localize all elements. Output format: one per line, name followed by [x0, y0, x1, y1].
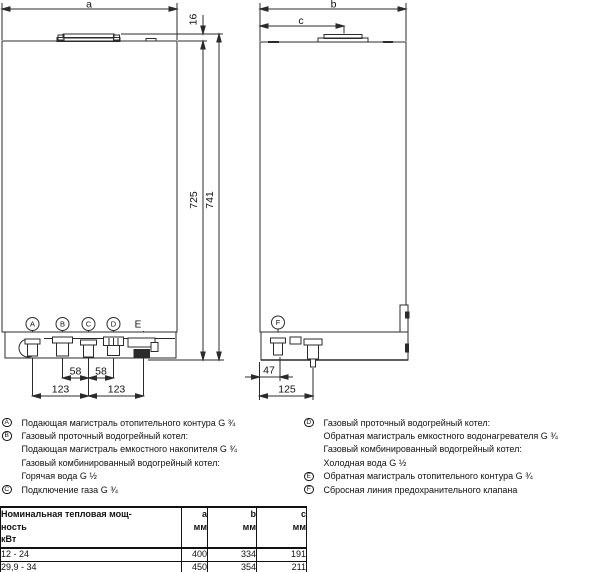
- table-header-row: Номинальная тепловая мощ- ность кВт a мм…: [1, 507, 307, 548]
- legend-item-c: C Подключение газа G ¾: [2, 483, 300, 496]
- table-header-c: c мм: [257, 507, 307, 548]
- dim-16-label: 16: [188, 14, 200, 26]
- value-c-cell: 211: [257, 562, 307, 572]
- dim-b-label: b: [331, 0, 337, 11]
- left-casing: [2, 41, 177, 332]
- legend-item-d: D Газовый проточный водогрейный котел:: [304, 416, 600, 429]
- power-range-cell: 29,9 - 34: [1, 562, 182, 572]
- legend-item-f: F Сбросная линия предохранительного клап…: [304, 483, 600, 496]
- dim-125-label: 125: [278, 384, 296, 396]
- port-a-label: A: [30, 320, 35, 329]
- legend-right-column: D Газовый проточный водогрейный котел: О…: [304, 416, 600, 496]
- legend-text: Подающая магистраль отопительного контур…: [22, 418, 236, 428]
- power-range-cell: 12 - 24: [1, 548, 182, 562]
- legend-text: Холодная вода G ½: [324, 458, 407, 468]
- table-row: 29,9 - 34 450 354 211: [1, 562, 307, 572]
- legend-item-b: B Газовый проточный водогрейный котел:: [2, 429, 300, 442]
- legend-marker-b: B: [2, 431, 12, 441]
- legend-text: Газовый проточный водогрейный котел:: [22, 431, 189, 441]
- legend-marker-e: E: [304, 472, 314, 482]
- legend-text: Сбросная линия предохранительного клапан…: [324, 485, 518, 495]
- dim-c-label: c: [298, 15, 303, 27]
- legend-text: Газовый комбинированный водогрейный коте…: [324, 444, 522, 454]
- port-f-label: F: [276, 318, 281, 327]
- legend-text: Обратная магистраль отопительного контур…: [324, 471, 533, 481]
- legend-left-column: A Подающая магистраль отопительного конт…: [2, 416, 300, 496]
- value-a-cell: 400: [182, 548, 208, 562]
- legend-item-a: A Подающая магистраль отопительного конт…: [2, 416, 300, 429]
- legend-text: Горячая вода G ½: [22, 471, 97, 481]
- table-row: 12 - 24 400 334 191: [1, 548, 307, 562]
- right-casing: [260, 42, 406, 332]
- legend-item: Холодная вода G ½: [304, 456, 600, 469]
- boiler-dimension-drawing: a b c 16 725 741 58 58 123 123 47 125 A …: [0, 0, 600, 410]
- value-b-cell: 334: [208, 548, 257, 562]
- dim-58-right-label: 58: [95, 366, 107, 378]
- page: a b c 16 725 741 58 58 123 123 47 125 A …: [0, 0, 600, 572]
- table-header-b: b мм: [208, 507, 257, 548]
- legend-marker-a: A: [2, 418, 12, 428]
- port-e-label: E: [135, 320, 142, 331]
- table-header-power: Номинальная тепловая мощ- ность кВт: [1, 507, 182, 548]
- legend-text: Подающая магистраль емкостного накопител…: [22, 444, 237, 454]
- legend-text: Газовый проточный водогрейный котел:: [324, 418, 491, 428]
- right-connection-panel: [261, 332, 408, 360]
- legend-marker-d: D: [304, 418, 314, 428]
- dim-47-label: 47: [263, 365, 275, 377]
- legend-item: Газовый комбинированный водогрейный коте…: [304, 443, 600, 456]
- table-header-a: a мм: [182, 507, 208, 548]
- dim-725-label: 725: [188, 191, 200, 209]
- legend-text: Подключение газа G ¾: [22, 485, 118, 495]
- port-b-label: B: [60, 320, 65, 329]
- dim-123-left-label: 123: [52, 384, 70, 396]
- legend-item: Обратная магистраль емкостного водонагре…: [304, 429, 600, 442]
- legend-text: Газовый комбинированный водогрейный коте…: [22, 458, 220, 468]
- legend-text: Обратная магистраль емкостного водонагре…: [324, 431, 558, 441]
- gas-valve-block: [134, 350, 150, 358]
- legend-item-e: E Обратная магистраль отопительного конт…: [304, 470, 600, 483]
- dim-58-left-label: 58: [70, 366, 82, 378]
- legend-marker-f: F: [304, 485, 314, 495]
- right-view: [245, 3, 409, 400]
- legend-item: Газовый комбинированный водогрейный коте…: [2, 456, 300, 469]
- dimensions-table: Номинальная тепловая мощ- ность кВт a мм…: [0, 506, 307, 572]
- port-d-label: D: [111, 320, 117, 329]
- value-b-cell: 354: [208, 562, 257, 572]
- legend-marker-c: C: [2, 485, 12, 495]
- value-a-cell: 450: [182, 562, 208, 572]
- legend-item: Горячая вода G ½: [2, 470, 300, 483]
- dim-a-label: a: [86, 0, 92, 11]
- legend-item: Подающая магистраль емкостного накопител…: [2, 443, 300, 456]
- dim-741-label: 741: [204, 191, 216, 209]
- port-c-label: C: [86, 320, 92, 329]
- value-c-cell: 191: [257, 548, 307, 562]
- dim-123-right-label: 123: [108, 384, 126, 396]
